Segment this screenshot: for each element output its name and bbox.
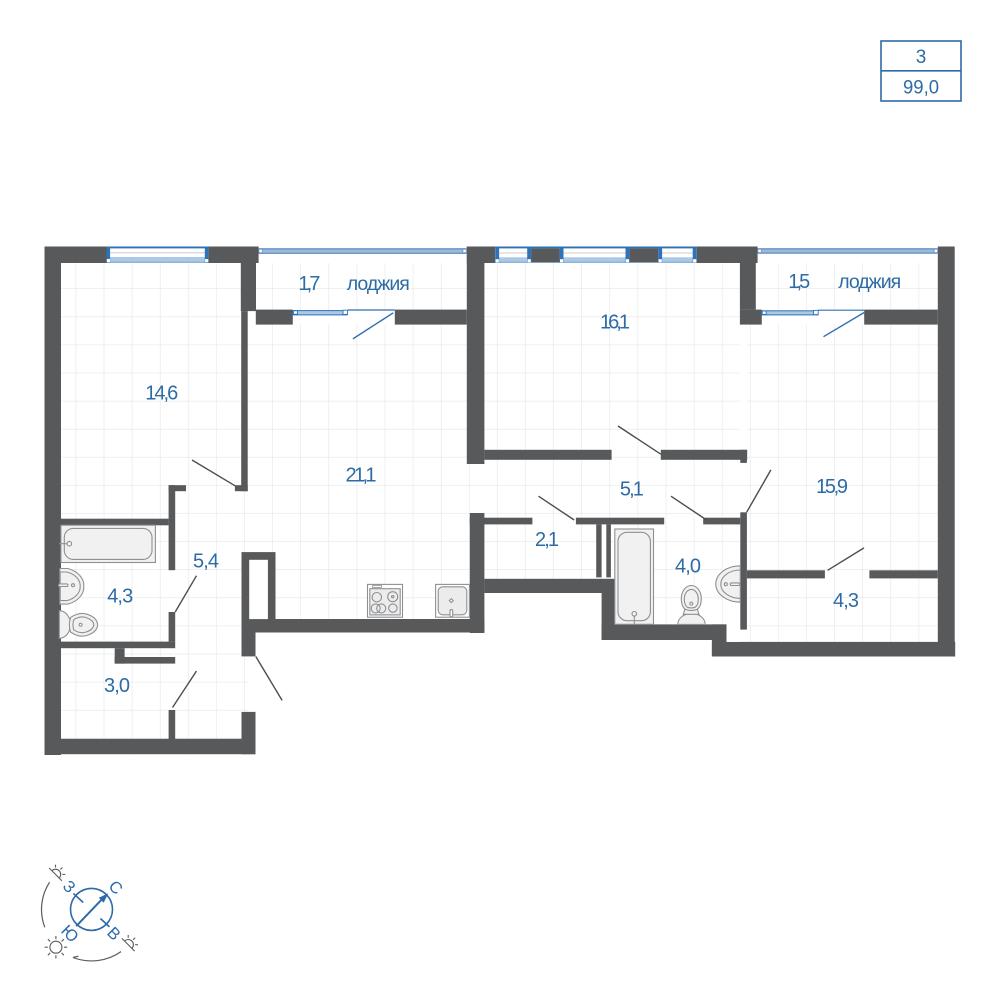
svg-text:4,3: 4,3 — [107, 586, 133, 608]
svg-text:14,6: 14,6 — [145, 383, 178, 405]
svg-text:3: 3 — [916, 47, 927, 68]
svg-text:21,1: 21,1 — [346, 464, 377, 486]
svg-text:3,0: 3,0 — [104, 675, 130, 697]
svg-text:1,5: 1,5 — [788, 271, 810, 293]
svg-text:лоджия: лоджия — [838, 271, 901, 293]
svg-text:5,4: 5,4 — [193, 550, 219, 572]
svg-text:15,9: 15,9 — [816, 476, 848, 498]
svg-text:4,3: 4,3 — [833, 590, 859, 612]
svg-text:лоджия: лоджия — [347, 273, 410, 295]
svg-text:1,7: 1,7 — [298, 273, 320, 295]
svg-text:4,0: 4,0 — [675, 555, 701, 577]
svg-text:2,1: 2,1 — [535, 529, 559, 551]
svg-text:5,1: 5,1 — [620, 478, 644, 500]
svg-text:16,1: 16,1 — [600, 312, 630, 334]
svg-text:99,0: 99,0 — [903, 78, 939, 99]
